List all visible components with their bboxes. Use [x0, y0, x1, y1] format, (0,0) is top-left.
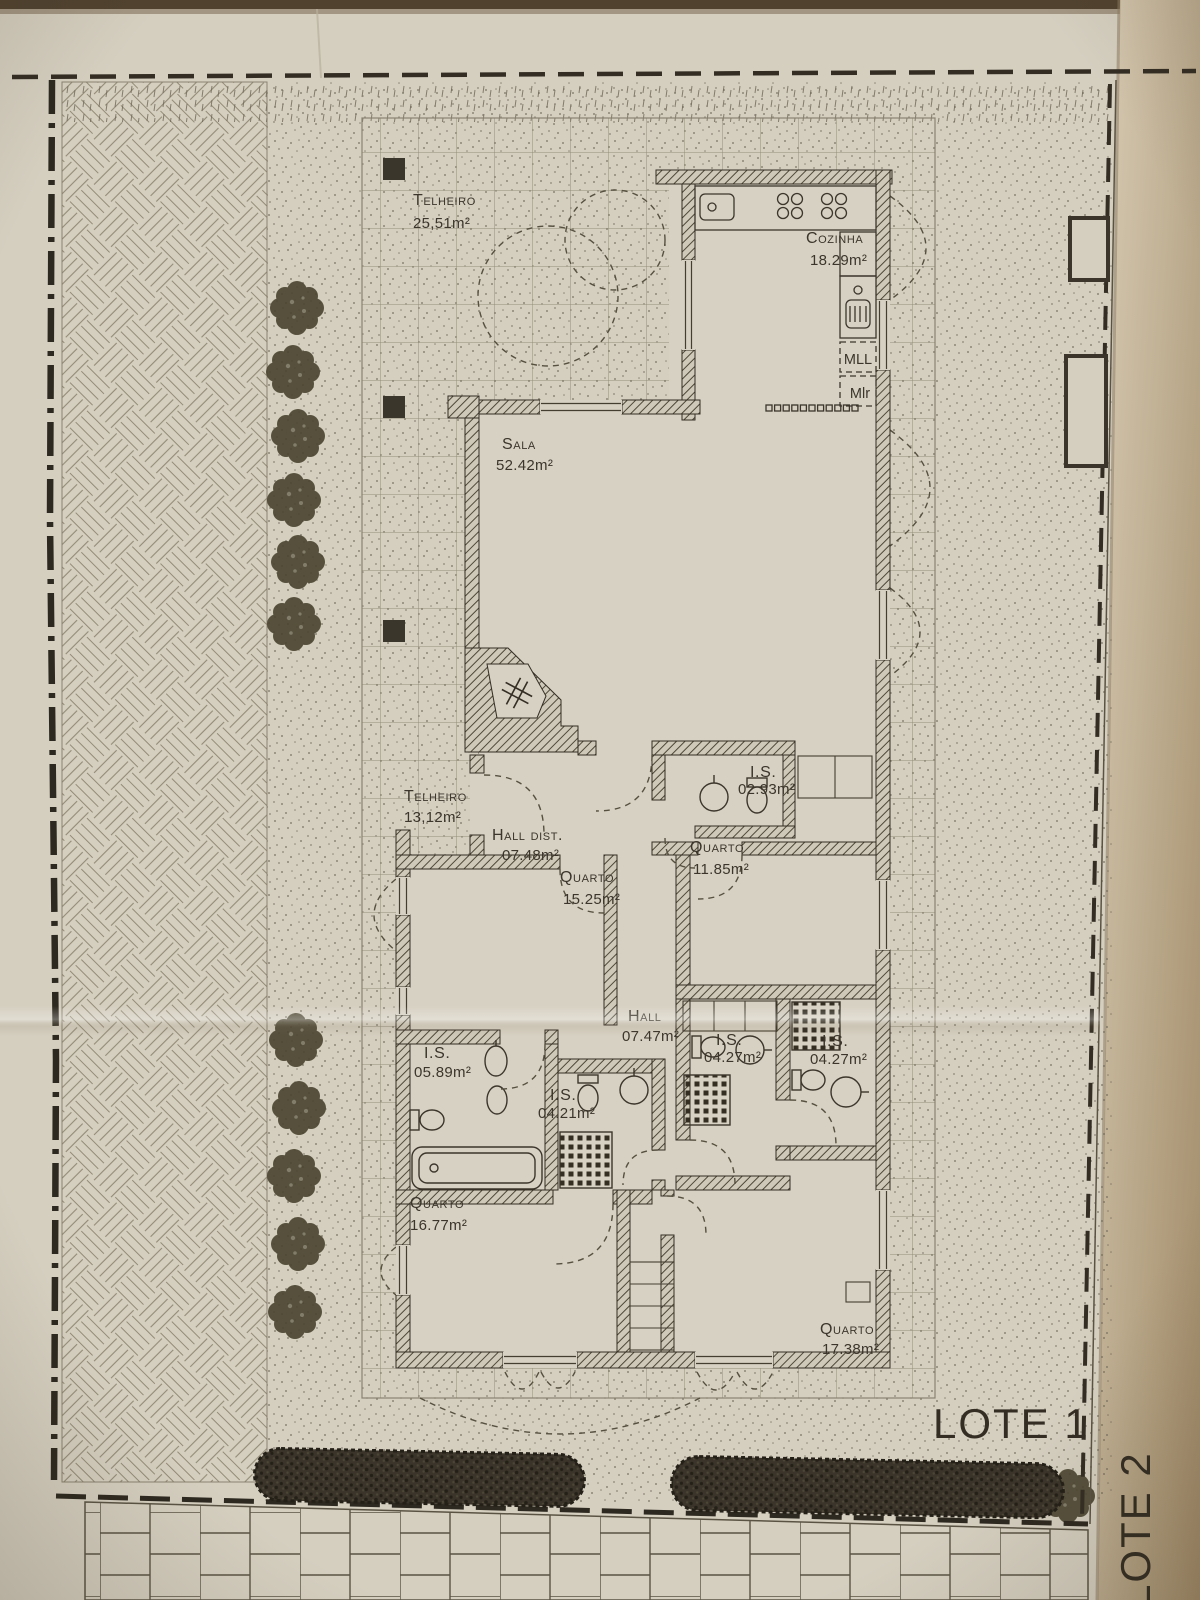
- room-area: 52.42m²: [496, 457, 553, 474]
- toilet-icon: [792, 1070, 825, 1090]
- washer-label: Mlr: [850, 386, 870, 402]
- room-area: 04.27m²: [704, 1049, 761, 1066]
- room-area: 07.48m²: [502, 847, 559, 864]
- room-area: 11.85m²: [693, 861, 749, 878]
- room-name: Sala: [502, 436, 536, 453]
- room-area: 18.29m²: [810, 252, 867, 269]
- room-area: 13,12m²: [404, 809, 461, 826]
- room-area: 25,51m²: [413, 215, 470, 232]
- lote-2-label: LOTE 2: [1112, 1451, 1159, 1600]
- lote-1-label: LOTE 1: [933, 1400, 1090, 1447]
- bathtub-icon: [412, 1147, 542, 1189]
- room-name: Quarto: [820, 1321, 874, 1338]
- basketweave-paving: [62, 82, 267, 1482]
- floor-plan-drawing: Telheiro 25,51m² Cozinha 18.29m² Sala 52…: [0, 0, 1200, 1600]
- room-name: I.S.: [424, 1045, 450, 1062]
- room-name: Telheiro: [404, 788, 467, 805]
- photo-edge-top: [0, 0, 1200, 9]
- room-name: I.S.: [550, 1087, 576, 1104]
- bidet-icon: [487, 1086, 507, 1114]
- planter-box-1: [1070, 218, 1108, 280]
- photographed-floor-plan: Telheiro 25,51m² Cozinha 18.29m² Sala 52…: [0, 0, 1200, 1600]
- room-area: 04.21m²: [538, 1105, 595, 1122]
- photo-edge-shade: [0, 9, 1200, 14]
- room-area: 04.27m²: [810, 1051, 867, 1068]
- horizontal-fold-shade: [0, 1006, 1100, 1036]
- toilet-icon: [410, 1110, 444, 1130]
- hedge-left: [254, 1448, 585, 1507]
- room-area: 15.25m²: [563, 891, 620, 908]
- room-name: Telheiro: [413, 192, 476, 209]
- hedge-right: [671, 1456, 1064, 1518]
- room-area: 17.38m²: [822, 1341, 879, 1358]
- room-name: Quarto: [410, 1195, 464, 1212]
- shower-icon: [560, 1132, 612, 1188]
- dishwasher-label: MLL: [844, 352, 872, 368]
- room-name: Quarto: [560, 869, 614, 886]
- planter-box-2: [1066, 356, 1106, 466]
- grass-strip-top: [62, 84, 1110, 122]
- shower-icon: [684, 1075, 730, 1125]
- room-name: I.S.: [750, 764, 776, 781]
- room-area: 16.77m²: [410, 1217, 467, 1234]
- room-area: 02.93m²: [738, 781, 795, 798]
- room-area: 05.89m²: [414, 1064, 471, 1081]
- room-name: Quarto: [690, 839, 744, 856]
- room-name: Hall dist.: [492, 827, 563, 844]
- room-name: Cozinha: [806, 230, 863, 247]
